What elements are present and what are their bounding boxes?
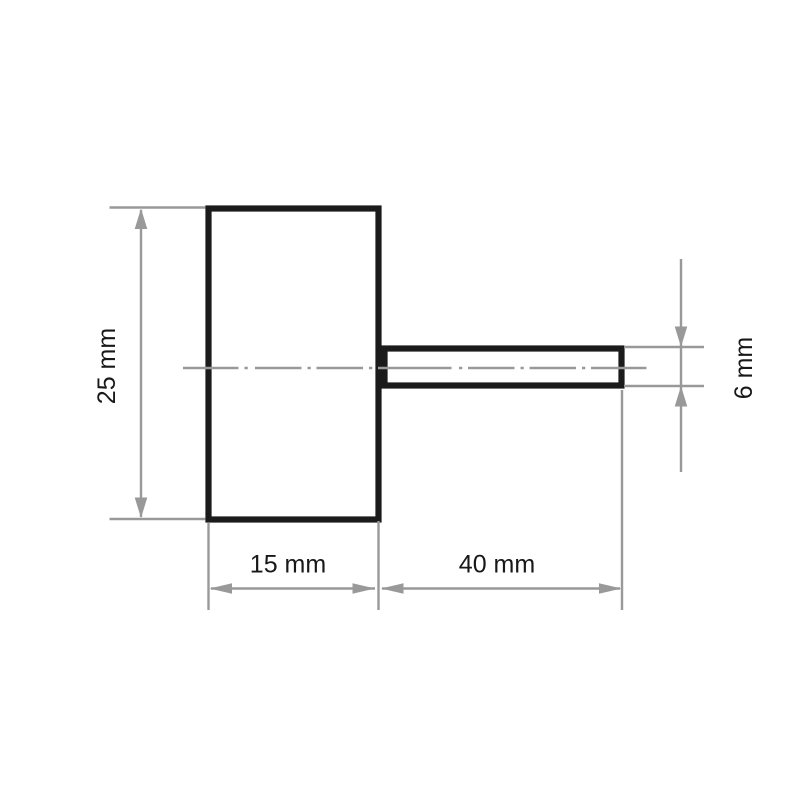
svg-text:40 mm: 40 mm [459,551,535,579]
svg-text:25 mm: 25 mm [93,328,121,404]
svg-text:6 mm: 6 mm [730,337,758,400]
svg-text:15 mm: 15 mm [250,551,326,579]
